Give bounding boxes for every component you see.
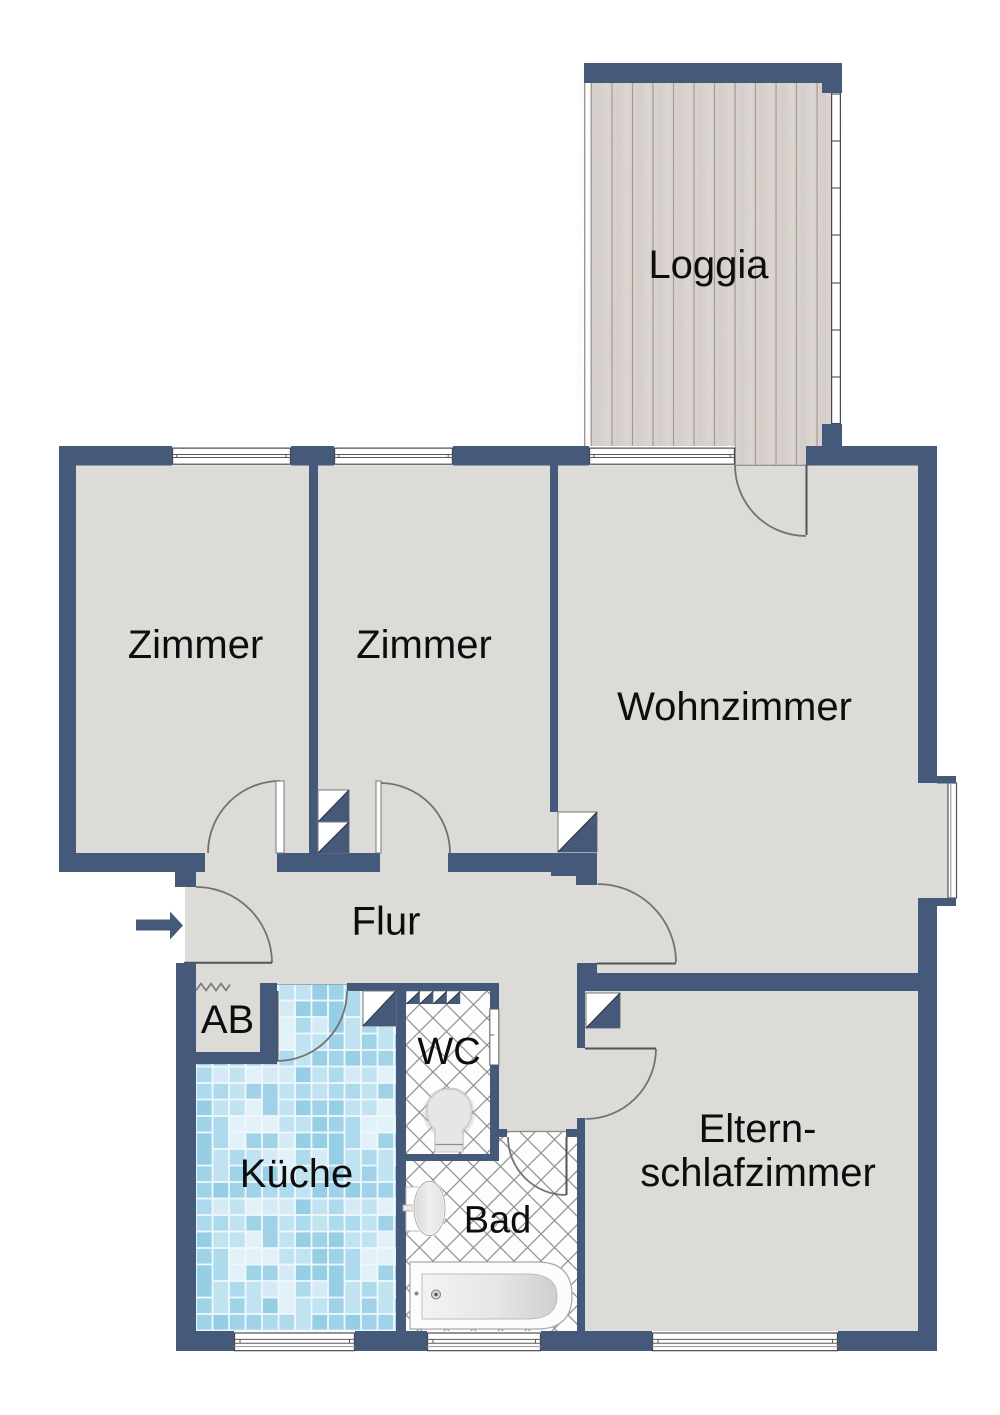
svg-text:WC: WC [417, 1031, 480, 1073]
svg-text:Wohnzimmer: Wohnzimmer [617, 685, 852, 729]
svg-text:Loggia: Loggia [648, 243, 769, 287]
svg-text:Zimmer: Zimmer [128, 623, 264, 667]
svg-text:Eltern-: Eltern- [699, 1107, 817, 1151]
svg-text:Zimmer: Zimmer [356, 623, 492, 667]
svg-text:schlafzimmer: schlafzimmer [640, 1151, 876, 1195]
svg-text:Bad: Bad [464, 1200, 532, 1242]
svg-text:Küche: Küche [240, 1152, 353, 1196]
svg-text:Flur: Flur [352, 900, 421, 944]
svg-text:AB: AB [201, 998, 254, 1042]
